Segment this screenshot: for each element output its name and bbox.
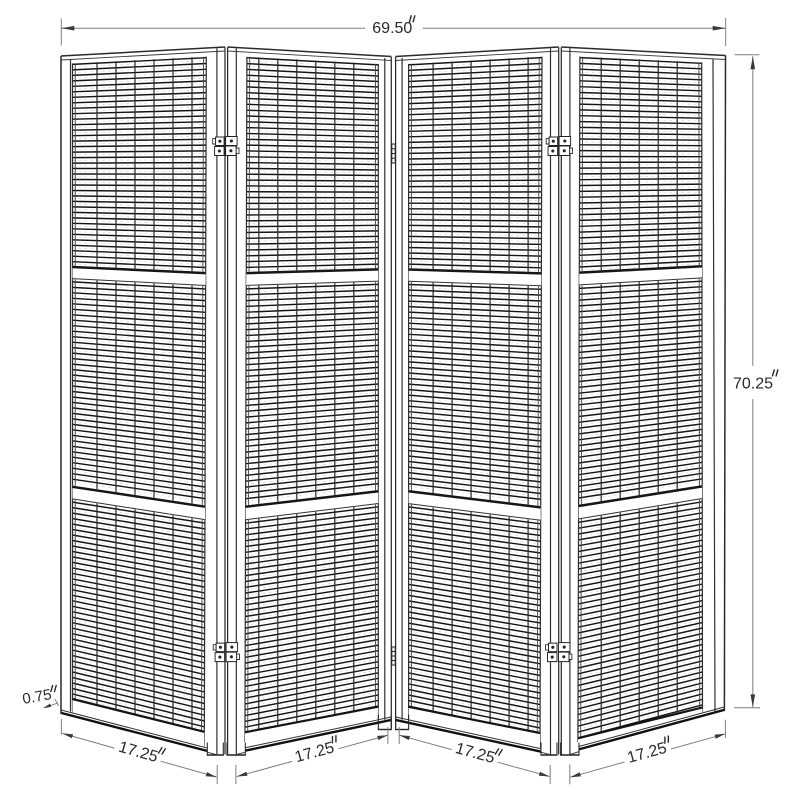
svg-text:69.50: 69.50 [372,20,412,37]
svg-text:0.75: 0.75 [21,686,53,708]
svg-text:70.25: 70.25 [733,375,773,392]
svg-text:17.25: 17.25 [117,739,160,766]
svg-text:17.25: 17.25 [293,739,336,766]
svg-text:17.25: 17.25 [453,740,496,767]
svg-text:17.25: 17.25 [626,740,669,767]
